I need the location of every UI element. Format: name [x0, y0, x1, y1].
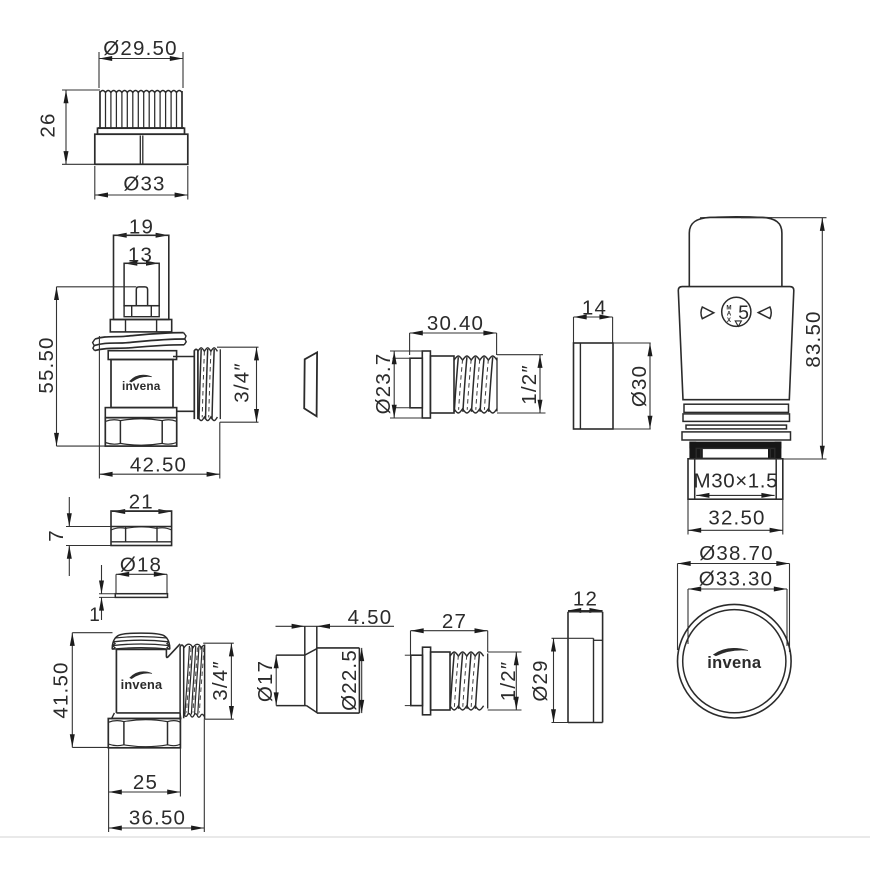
svg-text:Ø23.7: Ø23.7 — [372, 353, 395, 415]
svg-text:Ø30: Ø30 — [628, 365, 651, 407]
svg-text:27: 27 — [442, 610, 467, 633]
svg-text:21: 21 — [129, 490, 154, 513]
svg-text:12: 12 — [573, 587, 598, 610]
svg-text:1: 1 — [89, 605, 100, 626]
svg-text:Ø33.30: Ø33.30 — [699, 567, 773, 590]
svg-text:25: 25 — [133, 771, 158, 794]
svg-text:Ø29.50: Ø29.50 — [103, 37, 177, 60]
svg-text:Ø38.70: Ø38.70 — [699, 542, 773, 565]
svg-text:3/4″: 3/4″ — [209, 660, 232, 701]
svg-text:36.50: 36.50 — [129, 806, 186, 829]
svg-text:83.50: 83.50 — [802, 310, 825, 367]
svg-text:Ø22.5: Ø22.5 — [338, 649, 361, 711]
svg-text:32.50: 32.50 — [708, 506, 765, 529]
svg-text:invena: invena — [122, 379, 161, 393]
svg-text:42.50: 42.50 — [130, 453, 187, 476]
svg-text:30.40: 30.40 — [427, 312, 484, 335]
svg-text:4.50: 4.50 — [348, 606, 393, 629]
svg-text:Ø17: Ø17 — [254, 660, 277, 702]
svg-text:Ø33: Ø33 — [123, 172, 165, 195]
svg-text:invena: invena — [707, 654, 762, 672]
svg-text:1/2″: 1/2″ — [518, 364, 541, 405]
svg-text:26: 26 — [36, 112, 59, 137]
svg-text:Ø29: Ø29 — [529, 659, 552, 701]
svg-text:invena: invena — [121, 677, 163, 692]
svg-text:55.50: 55.50 — [35, 336, 58, 393]
svg-text:7: 7 — [45, 529, 68, 542]
svg-text:M30×1.5: M30×1.5 — [694, 470, 779, 493]
svg-text:41.50: 41.50 — [49, 661, 72, 718]
svg-text:3/4″: 3/4″ — [230, 362, 253, 403]
